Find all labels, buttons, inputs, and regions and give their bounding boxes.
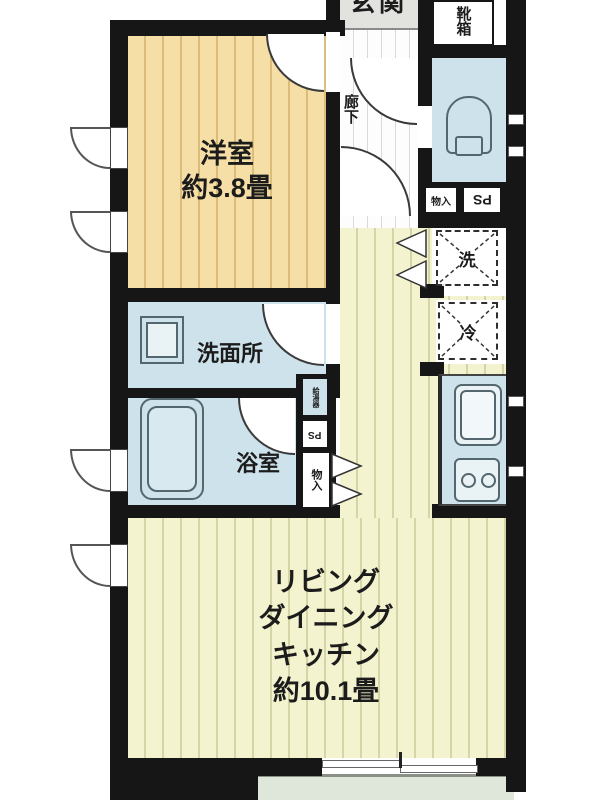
wall-above-toilet — [418, 45, 506, 58]
ps-upper-box: PS — [462, 186, 502, 214]
storage-upper-label: 物入 — [431, 193, 451, 208]
ldk-line1: リビング — [128, 564, 524, 600]
sliding-window-pane-left-icon — [322, 760, 402, 768]
ldk-line3: キッチン — [128, 637, 524, 673]
washroom-label: 洗面所 — [150, 340, 310, 368]
washroom-door-gap — [326, 304, 340, 364]
entrance-label: 玄関 — [340, 0, 418, 19]
window-western-2-icon — [110, 211, 128, 253]
kitchen-counter — [438, 374, 506, 506]
wall-bottom-right — [476, 758, 526, 776]
western-door-gap — [326, 32, 340, 92]
water-heater-box: 給湯器 — [302, 378, 328, 416]
ldk-size: 約10.1畳 — [128, 673, 524, 709]
entrance-floor: 玄関 — [340, 0, 418, 30]
sliding-window-tick-icon — [399, 752, 402, 768]
washer-space-icon: 洗 — [436, 230, 498, 286]
washer-closet-folding-door-icon — [394, 228, 428, 290]
ldk-label: リビング ダイニング キッチン 約10.1畳 — [128, 564, 524, 710]
window-western-1-swing-icon — [70, 127, 110, 169]
slit-window-toilet-2-icon — [508, 146, 524, 157]
shoe-box: 靴箱 — [432, 0, 494, 46]
western-room-label: 洋室 約3.8畳 — [128, 138, 326, 206]
kitchen-sink-icon — [454, 384, 502, 446]
slit-window-kitchen-1-icon — [508, 396, 524, 407]
water-heater-label: 給湯器 — [310, 387, 320, 408]
window-bathroom-swing-icon — [70, 449, 110, 492]
bathroom-label: 浴室 — [218, 450, 298, 478]
slit-window-toilet-1-icon — [508, 114, 524, 125]
hallway-label: 廊下 — [340, 94, 361, 124]
wall-counter-bottom — [432, 504, 506, 518]
storage-folding-door-icon — [330, 452, 364, 508]
window-ldk-icon — [110, 544, 128, 587]
wall-corridor-top — [420, 215, 506, 228]
shoe-box-label: 靴箱 — [453, 6, 474, 36]
fridge-space-icon: 冷 — [438, 302, 498, 360]
window-western-2-swing-icon — [70, 211, 110, 253]
storage-mid-box: 物入 — [302, 452, 330, 508]
floor-plan: 玄関 靴箱 — [0, 0, 600, 800]
sliding-window-pane-right-icon — [400, 765, 478, 773]
slit-window-kitchen-2-icon — [508, 466, 524, 477]
wall-bottom-block — [110, 758, 258, 800]
western-room-name: 洋室 — [128, 138, 326, 172]
ps-mid-box: PS — [302, 420, 328, 448]
ps-upper-label: PS — [473, 192, 492, 208]
western-room-size: 約3.8畳 — [128, 172, 326, 206]
storage-upper-box: 物入 — [424, 186, 458, 214]
window-western-1-icon — [110, 127, 128, 169]
wall-western-bottom — [110, 288, 340, 302]
window-bathroom-icon — [110, 449, 128, 492]
bathtub-icon — [140, 398, 208, 504]
ldk-line2: ダイニング — [128, 600, 524, 636]
toilet-icon — [446, 96, 492, 160]
toilet-door-gap — [418, 106, 432, 148]
window-ldk-swing-icon — [70, 544, 110, 587]
storage-mid-label: 物入 — [308, 469, 324, 491]
balcony-floor — [258, 774, 514, 800]
stove-icon — [454, 458, 500, 502]
ps-mid-label: PS — [308, 429, 321, 440]
